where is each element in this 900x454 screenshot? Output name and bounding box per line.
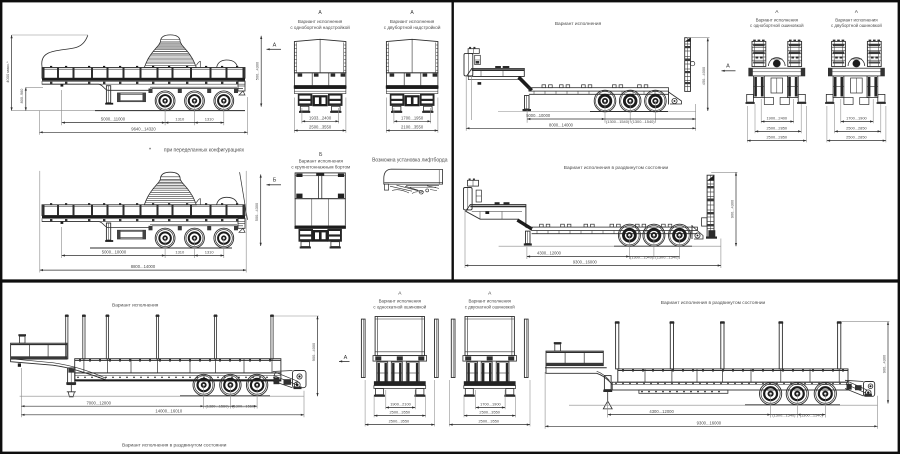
svg-text:500...4300: 500...4300 xyxy=(255,61,260,80)
svg-text:с двускатной ошиновкой: с двускатной ошиновкой xyxy=(465,304,515,309)
svg-text:900...4300: 900...4300 xyxy=(881,354,886,373)
svg-text:Вариант исполнения в раздви: Вариант исполнения в раздвинутом состоян… xyxy=(122,443,227,449)
svg-text:Вариант исполнения: Вариант исполнения xyxy=(112,302,159,308)
svg-text:450...4000: 450...4000 xyxy=(701,66,706,85)
svg-text:Вариант исполнения в раздви: Вариант исполнения в раздвинутом состоян… xyxy=(564,165,669,171)
svg-text:5000...10000: 5000...10000 xyxy=(526,113,551,118)
svg-text:(1300...1540): (1300...1540) xyxy=(631,119,655,124)
svg-text:4000 макс.*: 4000 макс.* xyxy=(5,61,10,83)
svg-text:с двубортной надстройкой: с двубортной надстройкой xyxy=(384,24,441,30)
svg-text:Вариант исполнения: Вариант исполнения xyxy=(835,18,878,23)
svg-text:2500...2850: 2500...2850 xyxy=(846,125,867,130)
svg-text:(1300...1540): (1300...1540) xyxy=(606,119,630,124)
svg-text:4300...12000: 4300...12000 xyxy=(537,251,562,256)
svg-text:(1300...1560): (1300...1560) xyxy=(232,404,256,409)
svg-text:(1300...1540): (1300...1540) xyxy=(630,255,654,260)
svg-text:1700...1900: 1700...1900 xyxy=(846,116,867,121)
svg-text:2500...2850: 2500...2850 xyxy=(767,135,788,140)
svg-text:2100...3550: 2100...3550 xyxy=(401,124,424,129)
svg-text:Вариант исполнения: Вариант исполнения xyxy=(299,159,344,164)
svg-text:1933...2400: 1933...2400 xyxy=(309,115,332,120)
svg-text:9300...16000: 9300...16000 xyxy=(573,260,598,265)
svg-text:1900...2400: 1900...2400 xyxy=(767,116,788,121)
svg-text:А: А xyxy=(344,355,348,361)
svg-text:4300...12000: 4300...12000 xyxy=(649,409,674,414)
svg-text:Вариант исполнения: Вариант исполнения xyxy=(555,21,602,27)
svg-text:при переделанных конфигурациях: при переделанных конфигурациях xyxy=(164,148,245,154)
svg-text:2500...2850: 2500...2850 xyxy=(846,135,867,140)
svg-text:А: А xyxy=(726,64,730,70)
svg-text:900...4300: 900...4300 xyxy=(729,199,734,218)
svg-text:с однобортной ошиновкой: с однобортной ошиновкой xyxy=(750,23,804,28)
svg-text:(1300...1540): (1300...1540) xyxy=(655,255,679,260)
svg-text:Вариант исполнения в раздви: Вариант исполнения в раздвинутом состоян… xyxy=(661,300,766,306)
svg-text:Б: Б xyxy=(273,178,277,184)
svg-text:А: А xyxy=(273,43,277,49)
svg-text:2500...2850: 2500...2850 xyxy=(767,125,788,130)
svg-text:1310: 1310 xyxy=(205,117,215,122)
svg-text:(1300...1540): (1300...1540) xyxy=(772,412,796,417)
svg-text:2500...3550: 2500...3550 xyxy=(390,410,411,415)
svg-text:2500...3550: 2500...3550 xyxy=(389,419,410,424)
svg-text:9640...14320: 9640...14320 xyxy=(131,126,156,131)
svg-text:800..960: 800..960 xyxy=(20,89,24,104)
svg-text:14000...16010: 14000...16010 xyxy=(155,409,182,414)
svg-text:с односкатной ошиновкой: с односкатной ошиновкой xyxy=(373,304,426,309)
svg-text:1310: 1310 xyxy=(175,117,185,122)
svg-text:8000...14000: 8000...14000 xyxy=(549,122,574,127)
svg-text:1900...2100: 1900...2100 xyxy=(390,401,411,406)
svg-text:2500...3550: 2500...3550 xyxy=(479,410,500,415)
svg-text:(1300...1540): (1300...1540) xyxy=(800,412,824,417)
svg-text:9300...16000: 9300...16000 xyxy=(697,420,722,425)
svg-text:5000...11000: 5000...11000 xyxy=(101,117,126,122)
svg-text:8800...14000: 8800...14000 xyxy=(131,264,156,269)
svg-text:7000...12000: 7000...12000 xyxy=(86,400,111,405)
svg-text:1310: 1310 xyxy=(205,250,215,255)
svg-text:5000...10000: 5000...10000 xyxy=(102,250,127,255)
svg-text:2500...3550: 2500...3550 xyxy=(309,124,332,129)
svg-text:с двубортной ошиновкой: с двубортной ошиновкой xyxy=(831,23,882,28)
svg-text:Вариант исполнения: Вариант исполнения xyxy=(756,18,799,23)
svg-text:1700...1900: 1700...1900 xyxy=(480,401,501,406)
svg-text:Вариант исполнения: Вариант исполнения xyxy=(390,19,435,24)
svg-text:500...4300: 500...4300 xyxy=(254,202,259,221)
svg-text:Возможна установка лифтборда: Возможна установка лифтборда xyxy=(372,158,448,164)
svg-text:2500...3550: 2500...3550 xyxy=(479,419,500,424)
svg-text:Вариант исполнения: Вариант исполнения xyxy=(379,299,422,304)
svg-text:*: * xyxy=(149,148,151,154)
svg-text:Вариант исполнения: Вариант исполнения xyxy=(298,19,343,24)
svg-text:1700...1950: 1700...1950 xyxy=(401,115,424,120)
svg-text:(1380...1560): (1380...1560) xyxy=(206,404,230,409)
svg-text:1310: 1310 xyxy=(175,250,185,255)
svg-text:с однобортной надстройкой: с однобортной надстройкой xyxy=(290,24,350,30)
svg-text:Вариант исполнения: Вариант исполнения xyxy=(468,299,511,304)
svg-text:с крупнотоннажным бортом: с крупнотоннажным бортом xyxy=(291,164,350,169)
svg-text:900...4000: 900...4000 xyxy=(311,342,316,361)
